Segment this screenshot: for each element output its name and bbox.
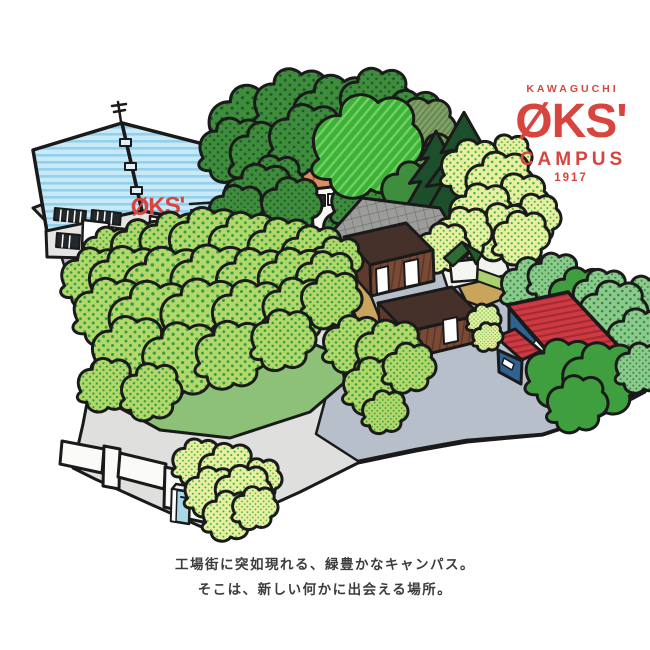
barn-door — [404, 259, 419, 287]
roof-antenna-icon — [112, 102, 126, 122]
brand-location: KAWAGUCHI — [498, 84, 647, 95]
barn-door — [443, 317, 458, 344]
barn-door — [376, 266, 389, 294]
caption-line-2: そこは、新しい何かに出会える場所。 — [0, 577, 650, 602]
brand-campus: CAMPUS — [498, 150, 648, 169]
page: ØKS' — [0, 0, 650, 650]
brand-name: ØKS' — [498, 98, 644, 146]
brand-year: 1917 — [498, 173, 644, 185]
brand-logo: KAWAGUCHI ØKS' CAMPUS 1917 — [498, 84, 644, 184]
caption-line-1: 工場街に突如現れる、緑豊かなキャンパス。 — [0, 552, 650, 577]
caption: 工場街に突如現れる、緑豊かなキャンパス。 そこは、新しい何かに出会える場所。 — [0, 552, 650, 602]
